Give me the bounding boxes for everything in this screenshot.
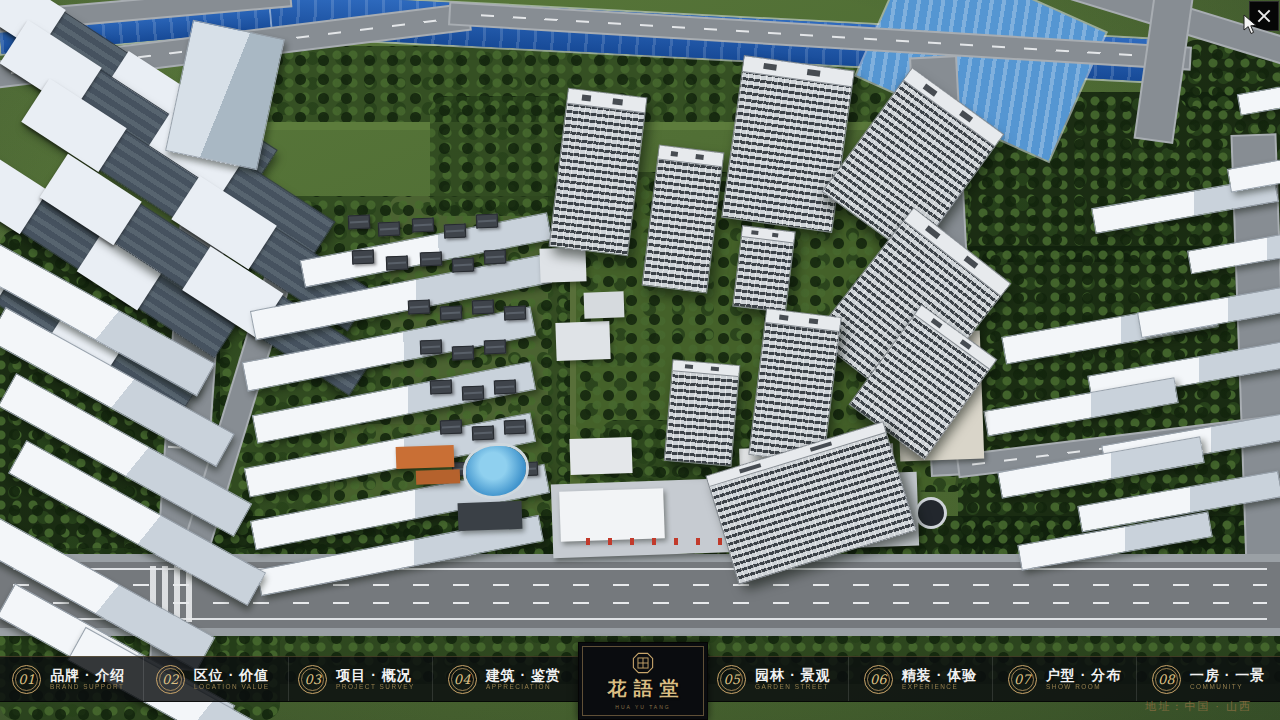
project-address: 地址：中国 · 山西 <box>1145 699 1252 714</box>
brand-name: 花語堂 <box>601 676 686 702</box>
tower-building <box>664 359 741 467</box>
building <box>416 469 460 485</box>
courtyard-house <box>440 419 463 434</box>
nav-subtitle: PROJECT SURVEY <box>336 683 415 690</box>
nav-title: 一房 · 一景 <box>1190 667 1265 683</box>
nav-subtitle: GARDEN STREET <box>755 683 829 690</box>
nav-number-badge: 02 <box>156 665 185 694</box>
courtyard-house <box>504 305 527 320</box>
courtyard-house <box>378 221 401 236</box>
nav-title: 区位 · 价值 <box>194 667 276 683</box>
nav-title: 项目 · 概况 <box>336 667 422 683</box>
nav-item-landscape[interactable]: 05 园林 · 景观 GARDEN STREET <box>704 657 848 701</box>
nav-number: 05 <box>724 672 741 687</box>
nav-title: 品牌 · 介绍 <box>50 667 131 683</box>
nav-item-interior-experience[interactable]: 06 精装 · 体验 EXPERIENCE <box>848 657 992 701</box>
courtyard-house <box>352 249 375 264</box>
nav-number: 03 <box>305 672 322 687</box>
nav-item-brand-intro[interactable]: 01 品牌 · 介绍 BRAND SUPPORT <box>0 657 143 701</box>
entry-fountain <box>918 500 944 526</box>
building <box>396 445 455 469</box>
entry-flag <box>718 538 722 545</box>
nav-item-architecture[interactable]: 04 建筑 · 鉴赏 APPRECIATION <box>432 657 576 701</box>
nav-number: 08 <box>1158 672 1175 687</box>
nav-subtitle: LOCATION VALUE <box>194 683 269 690</box>
courtyard-house <box>494 379 517 394</box>
nav-number-badge: 08 <box>1152 665 1181 694</box>
nav-group-right: 05 园林 · 景观 GARDEN STREET 06 精装 · 体验 EXPE… <box>704 657 1280 701</box>
tree-grove <box>430 96 570 216</box>
entry-flag <box>696 538 700 545</box>
courtyard-house <box>452 345 475 360</box>
courtyard-house <box>484 249 507 264</box>
entry-flag <box>652 538 656 545</box>
entry-flag <box>630 538 634 545</box>
courtyard-house <box>476 213 499 228</box>
courtyard-house <box>412 217 435 232</box>
entry-flag <box>608 538 612 545</box>
nav-title: 园林 · 景观 <box>755 667 835 683</box>
nav-number-badge: 07 <box>1008 665 1037 694</box>
nav-subtitle: EXPERIENCE <box>902 683 971 690</box>
nav-subtitle: BRAND SUPPORT <box>50 683 124 690</box>
entry-flag <box>586 538 590 545</box>
nav-item-room-view[interactable]: 08 一房 · 一景 COMMUNITY <box>1136 657 1280 701</box>
courtyard-house <box>408 299 431 314</box>
courtyard-house <box>348 214 371 229</box>
courtyard-house <box>452 257 475 272</box>
close-button[interactable] <box>1249 1 1279 31</box>
nav-item-location-value[interactable]: 02 区位 · 价值 LOCATION VALUE <box>143 657 287 701</box>
nav-number: 04 <box>454 672 471 687</box>
courtyard-house <box>420 251 443 266</box>
tower-building <box>732 225 796 313</box>
courtyard-house <box>444 223 467 238</box>
masterplan-3d-view[interactable] <box>0 0 1280 720</box>
courtyard-house <box>440 305 463 320</box>
brand-seal-icon <box>632 652 654 674</box>
tower-building <box>721 55 855 233</box>
nav-group-left: 01 品牌 · 介绍 BRAND SUPPORT 02 区位 · 价值 LOCA… <box>0 657 576 701</box>
nav-item-floorplan-distribution[interactable]: 07 户型 · 分布 SHOW ROOM <box>992 657 1136 701</box>
courtyard-house <box>472 299 495 314</box>
nav-title: 精装 · 体验 <box>902 667 977 683</box>
nav-number-badge: 06 <box>864 665 893 694</box>
nav-subtitle: SHOW ROOM <box>1046 683 1115 690</box>
brand-name-latin: HUA YU TANG <box>615 704 670 710</box>
building <box>539 247 586 283</box>
nav-number: 07 <box>1014 672 1031 687</box>
nav-subtitle: APPRECIATION <box>486 683 555 690</box>
building <box>559 488 665 542</box>
building <box>569 437 632 475</box>
nav-number: 06 <box>870 672 887 687</box>
nav-number-badge: 05 <box>717 665 746 694</box>
nav-title: 户型 · 分布 <box>1046 667 1121 683</box>
courtyard-house <box>462 385 485 400</box>
courtyard-house <box>386 255 409 270</box>
building <box>584 291 625 318</box>
courtyard-house <box>472 425 495 440</box>
nav-number-badge: 04 <box>448 665 477 694</box>
nav-subtitle: COMMUNITY <box>1190 683 1259 690</box>
courtyard-house <box>484 339 507 354</box>
building <box>555 321 610 361</box>
courtyard-house <box>430 379 453 394</box>
courtyard-house <box>420 339 443 354</box>
nav-number: 02 <box>162 672 179 687</box>
brand-logo-panel: 花語堂 HUA YU TANG <box>578 642 708 720</box>
nav-number-badge: 01 <box>12 665 41 694</box>
courtyard-house <box>504 419 527 434</box>
nav-number: 01 <box>18 672 35 687</box>
nav-number-badge: 03 <box>298 665 327 694</box>
nav-item-project-overview[interactable]: 03 项目 · 概况 PROJECT SURVEY <box>288 657 432 701</box>
entry-flag <box>674 538 678 545</box>
brand-logo-frame: 花語堂 HUA YU TANG <box>582 646 704 716</box>
presentation-window: 01 品牌 · 介绍 BRAND SUPPORT 02 区位 · 价值 LOCA… <box>0 0 1280 720</box>
nav-title: 建筑 · 鉴赏 <box>486 667 561 683</box>
building <box>458 501 523 531</box>
